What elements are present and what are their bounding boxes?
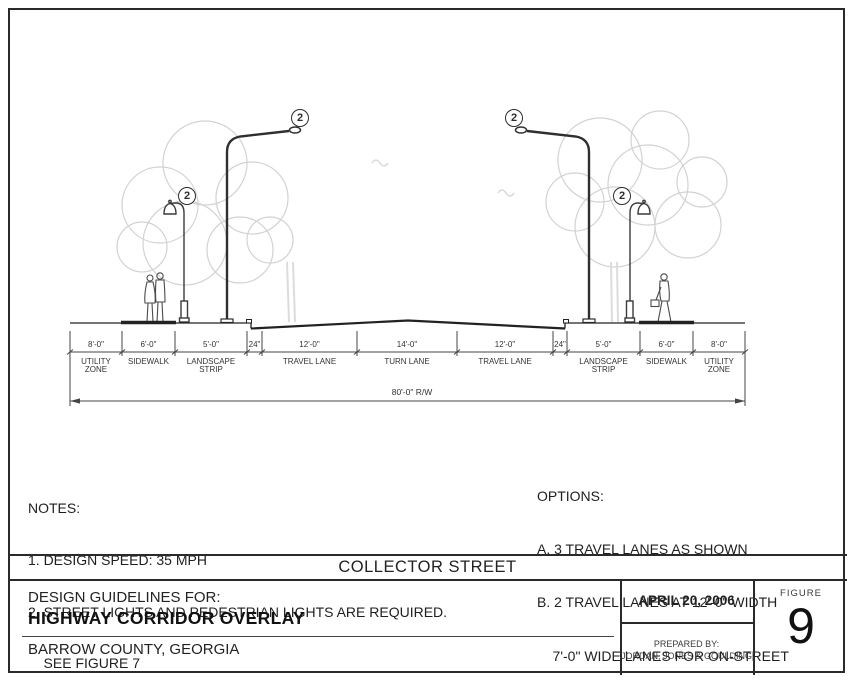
dimension-zone-label: LANDSCAPE STRIP	[177, 358, 245, 374]
dimension-width-label: 12'-0"	[495, 340, 515, 349]
options-heading: OPTIONS:	[537, 488, 789, 506]
dimension-width-label: 12'-0"	[299, 340, 319, 349]
dimension-zone-label: LANDSCAPE STRIP	[569, 358, 638, 374]
document-date: APRIL 20, 2006	[620, 579, 753, 624]
dimension-zone-label: SIDEWALK	[642, 358, 691, 366]
title-block-middle: APRIL 20, 2006 PREPARED BY: JORDAN, JONE…	[620, 579, 755, 675]
document-location: BARROW COUNTY, GEORGIA	[28, 641, 239, 658]
keynote-2-callout-street-light-right: 2	[505, 109, 523, 127]
dimension-zone-label: SIDEWALK	[124, 358, 173, 366]
left-tree-icon	[117, 121, 514, 322]
prepared-by-name: JORDAN, JONES & GOULDING	[621, 650, 752, 662]
dimension-zone-label: TRAVEL LANE	[270, 358, 350, 366]
figure-number: 9	[755, 597, 847, 655]
prepared-by-cell: PREPARED BY: JORDAN, JONES & GOULDING	[620, 624, 753, 675]
keynote-2-callout-ped-light-right: 2	[613, 187, 631, 205]
dimension-width-label: 5'-0"	[203, 340, 219, 349]
figure-9-sheet: 8'-0"UTILITY ZONE6'-0"SIDEWALK5'-0"LANDS…	[0, 0, 855, 683]
dimension-width-label: 24"	[554, 340, 566, 349]
figure-cell: FIGURE 9	[755, 579, 847, 675]
right-pedestrian-light-icon	[625, 200, 650, 322]
dimension-zone-label: TRAVEL LANE	[465, 358, 545, 366]
dimension-width-label: 5'-0"	[596, 340, 612, 349]
title-divider	[22, 636, 614, 637]
right-pedestrian-icon	[651, 274, 671, 322]
keynote-2-callout-ped-light-left: 2	[178, 187, 196, 205]
dimension-zone-label: UTILITY ZONE	[695, 358, 743, 374]
street-type-bar: COLLECTOR STREET	[8, 554, 847, 581]
prepared-by-label: PREPARED BY:	[654, 638, 719, 650]
street-type-label: COLLECTOR STREET	[338, 558, 516, 577]
document-title: HIGHWAY CORRIDOR OVERLAY	[28, 608, 305, 629]
dimension-width-label: 24"	[249, 340, 261, 349]
title-prefix: DESIGN GUIDELINES FOR:	[28, 589, 221, 606]
dimension-zone-label: TURN LANE	[367, 358, 447, 366]
dimension-width-label: 8'-0"	[88, 340, 104, 349]
dimension-width-label: 8'-0"	[711, 340, 727, 349]
dimension-width-label: 14'-0"	[397, 340, 417, 349]
dimension-zone-label: UTILITY ZONE	[72, 358, 120, 374]
right-street-light-icon	[516, 127, 596, 323]
title-block-left: DESIGN GUIDELINES FOR: HIGHWAY CORRIDOR …	[8, 579, 622, 675]
ground-profile	[70, 320, 745, 329]
right-tree-icon	[546, 111, 727, 322]
left-pedestrian-light-icon	[164, 200, 189, 322]
notes-heading: NOTES:	[28, 500, 447, 517]
right-of-way-label: 80'-0" R/W	[392, 387, 433, 397]
left-pedestrians-icon	[145, 273, 165, 322]
dimension-width-label: 6'-0"	[141, 340, 157, 349]
dimension-width-label: 6'-0"	[659, 340, 675, 349]
keynote-2-callout-street-light-left: 2	[291, 109, 309, 127]
